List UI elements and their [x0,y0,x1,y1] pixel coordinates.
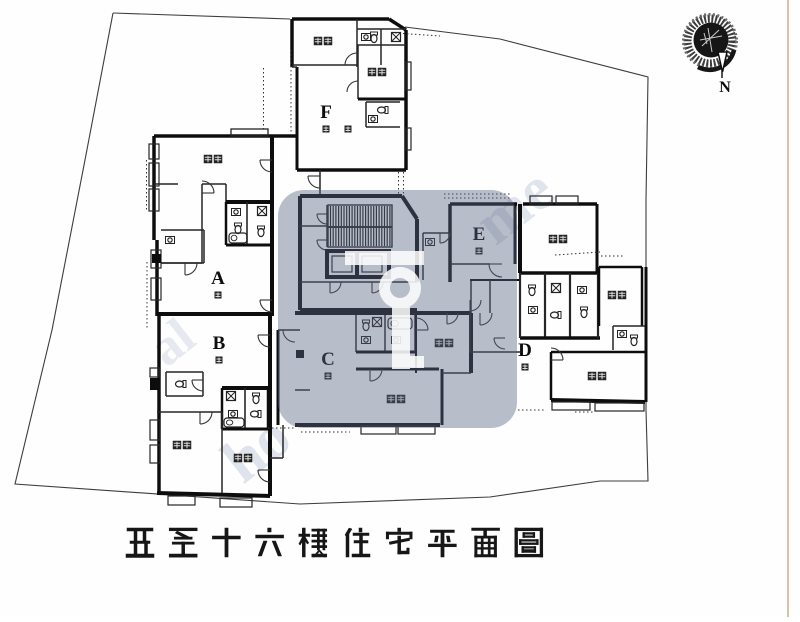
svg-text:F: F [320,102,332,123]
svg-text:N: N [719,79,731,96]
svg-text:A: A [211,268,225,289]
svg-text:B: B [213,333,226,354]
svg-text:D: D [518,340,532,361]
